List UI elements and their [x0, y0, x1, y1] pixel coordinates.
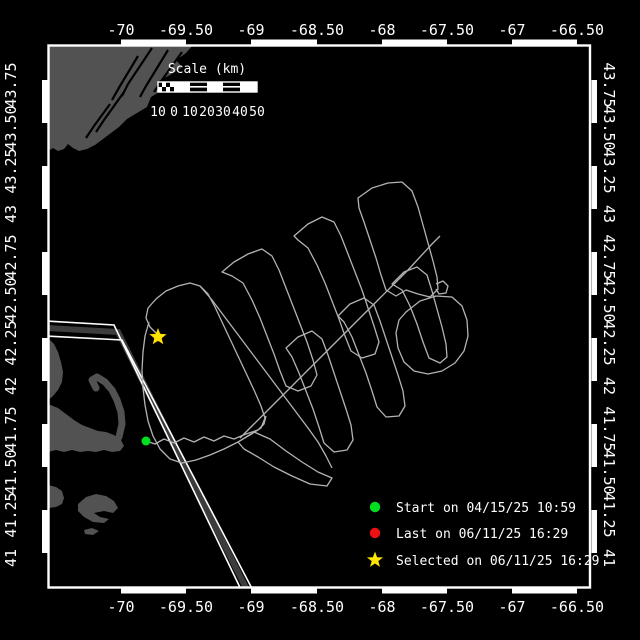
track-segment-lower-left-loop[interactable]	[238, 432, 332, 486]
track-segment-upper-loop-2[interactable]	[294, 217, 379, 358]
track-segment-east-loop[interactable]	[396, 296, 468, 374]
top-tick--66.50: -66.50	[550, 21, 604, 39]
legend-last-icon	[370, 528, 380, 538]
scalebar-title: Scale (km)	[168, 62, 246, 77]
bottom-tick--70: -70	[107, 598, 134, 616]
track-segment-lower-loop-2[interactable]	[338, 298, 405, 417]
scalebar-label-5: 40	[232, 105, 248, 120]
zebra-left-seg	[42, 295, 48, 338]
mainland-strip	[48, 338, 63, 400]
legend-selected-icon	[367, 552, 383, 567]
legend: Start on 04/15/25 10:59Last on 06/11/25 …	[367, 501, 600, 569]
bottom-tick--66.50: -66.50	[550, 598, 604, 616]
cape-cod	[48, 404, 124, 452]
left-tick-42: 42	[2, 377, 20, 395]
selected-marker[interactable]	[149, 328, 166, 344]
scalebar-checker-cell	[170, 87, 174, 92]
left-tick-42.50: 42.50	[2, 277, 20, 322]
zebra-left-seg	[42, 123, 48, 166]
left-tick-41.75: 41.75	[2, 406, 20, 451]
zebra-bottom-seg	[447, 588, 512, 594]
island-at-frame	[48, 485, 64, 508]
top-tick--68: -68	[368, 21, 395, 39]
scalebar-checker-cell	[166, 82, 170, 87]
zebra-bottom-seg	[186, 588, 251, 594]
left-tick-41.50: 41.50	[2, 449, 20, 494]
map-canvas[interactable]: -70-69.50-69-68.50-68-67.50-67-66.50-70-…	[0, 0, 640, 640]
cape-cod-hook	[92, 377, 122, 437]
left-tick-41.25: 41.25	[2, 492, 20, 537]
top-tick--69: -69	[237, 21, 264, 39]
left-tick-43.50: 43.50	[2, 105, 20, 150]
bottom-tick--68.50: -68.50	[290, 598, 344, 616]
zebra-left-seg	[42, 381, 48, 424]
scalebar-checker-cell	[162, 87, 166, 92]
zebra-top-seg	[186, 40, 251, 46]
start-marker[interactable]	[142, 437, 151, 446]
scalebar-label-3: 20	[199, 105, 215, 120]
zebra-top-seg	[317, 40, 382, 46]
right-tick-42: 42	[600, 377, 618, 395]
zebra-left-seg	[42, 209, 48, 252]
legend-selected-label: Selected on 06/11/25 16:29	[396, 554, 600, 569]
zebra-right-seg	[592, 123, 598, 166]
zebra-right-seg	[592, 467, 598, 510]
zebra-right-seg	[592, 381, 598, 424]
scalebar-label-4: 30	[215, 105, 231, 120]
top-tick--67: -67	[498, 21, 525, 39]
zebra-bottom-seg	[317, 588, 382, 594]
scalebar-seg-midline	[223, 86, 240, 88]
left-tick-41: 41	[2, 549, 20, 567]
scalebar-label-2: 10	[182, 105, 198, 120]
right-tick-43: 43	[600, 205, 618, 223]
legend-start-label: Start on 04/15/25 10:59	[396, 501, 576, 516]
bottom-tick--69.50: -69.50	[159, 598, 213, 616]
right-tick-43.50: 43.50	[600, 105, 618, 150]
right-tick-43.25: 43.25	[600, 148, 618, 193]
bottom-tick--67: -67	[498, 598, 525, 616]
scalebar-label-0: 10	[150, 105, 166, 120]
left-tick-43.75: 43.75	[2, 62, 20, 107]
zebra-right-seg	[592, 209, 598, 252]
track-segment-transit-ne[interactable]	[240, 236, 440, 438]
left-tick-43.25: 43.25	[2, 148, 20, 193]
right-tick-43.75: 43.75	[600, 62, 618, 107]
zebra-right-seg	[592, 295, 598, 338]
right-tick-41.25: 41.25	[600, 492, 618, 537]
island-crescent	[78, 494, 118, 523]
top-tick--68.50: -68.50	[290, 21, 344, 39]
track-segment-lower-loop-3[interactable]	[392, 267, 447, 363]
legend-start-icon	[370, 502, 380, 512]
shipping-lane	[46, 321, 258, 600]
scalebar-seg-midline	[190, 86, 207, 88]
left-tick-42.25: 42.25	[2, 320, 20, 365]
right-tick-42.75: 42.75	[600, 234, 618, 279]
bottom-tick--69: -69	[237, 598, 264, 616]
track-segment-lower-loop-1[interactable]	[286, 331, 353, 452]
top-tick--67.50: -67.50	[420, 21, 474, 39]
bottom-tick--67.50: -67.50	[420, 598, 474, 616]
right-tick-42.50: 42.50	[600, 277, 618, 322]
glider-track[interactable]	[142, 182, 468, 486]
right-tick-41.50: 41.50	[600, 449, 618, 494]
left-tick-42.75: 42.75	[2, 234, 20, 279]
lane-core	[46, 328, 252, 600]
glider-track-map-window: -70-69.50-69-68.50-68-67.50-67-66.50-70-…	[0, 0, 640, 640]
right-tick-41: 41	[600, 549, 618, 567]
left-tick-43: 43	[2, 205, 20, 223]
zebra-left-seg	[42, 467, 48, 510]
bottom-tick--68: -68	[368, 598, 395, 616]
islet	[84, 528, 99, 535]
lane-underlay	[46, 328, 252, 600]
scalebar-label-1: 0	[170, 105, 178, 120]
zebra-top-seg	[447, 40, 512, 46]
lane-edge-0	[46, 321, 246, 600]
right-tick-42.25: 42.25	[600, 320, 618, 365]
right-tick-41.75: 41.75	[600, 406, 618, 451]
scalebar: Scale (km)1001020304050	[150, 62, 265, 120]
legend-last-label: Last on 06/11/25 16:29	[396, 527, 568, 542]
top-tick--70: -70	[107, 21, 134, 39]
track-segment-transit-se[interactable]	[200, 286, 332, 468]
scalebar-label-6: 50	[249, 105, 265, 120]
top-tick--69.50: -69.50	[159, 21, 213, 39]
track-segment-upper-loop-1[interactable]	[222, 249, 317, 391]
